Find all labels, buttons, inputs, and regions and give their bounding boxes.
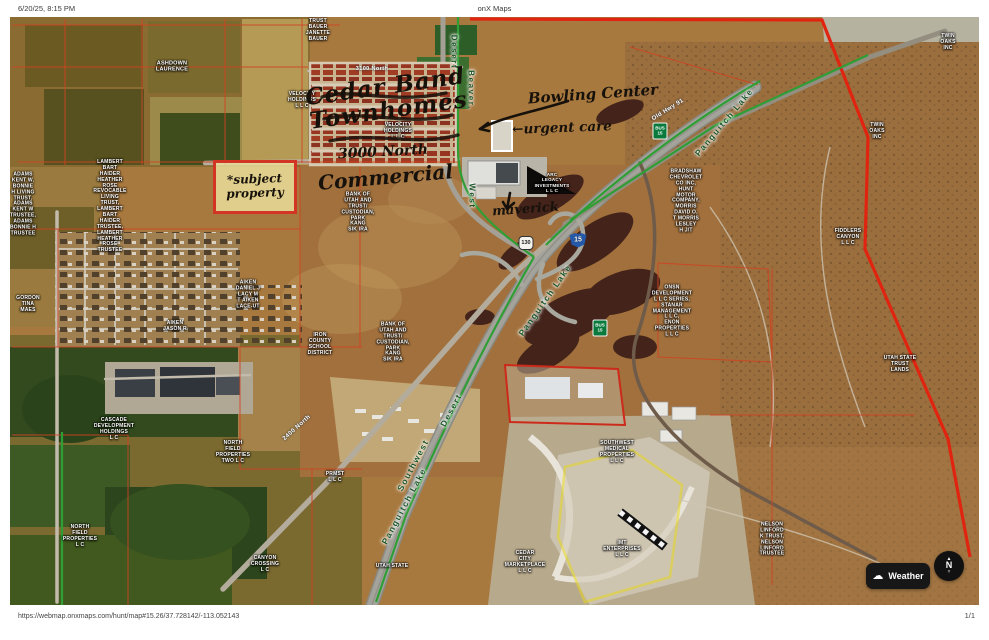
document-title: onX Maps	[0, 4, 989, 13]
footer-url: https://webmap.onxmaps.com/hunt/map#15.2…	[18, 613, 239, 620]
compass-north-button[interactable]: ▲ N ▼	[934, 551, 964, 581]
weather-button[interactable]: ☁ Weather	[866, 563, 930, 589]
south-arrow-icon: ▼	[947, 570, 952, 574]
map-canvas[interactable]: DesertBeaver,WestPanguitch LakePanguitch…	[10, 17, 979, 605]
satellite-terrain	[10, 17, 979, 605]
weather-button-label: Weather	[888, 571, 923, 581]
page-indicator: 1/1	[965, 611, 975, 620]
cloud-icon: ☁	[872, 571, 883, 582]
printed-page: { "page": { "printed_timestamp": "6/20/2…	[0, 0, 989, 640]
